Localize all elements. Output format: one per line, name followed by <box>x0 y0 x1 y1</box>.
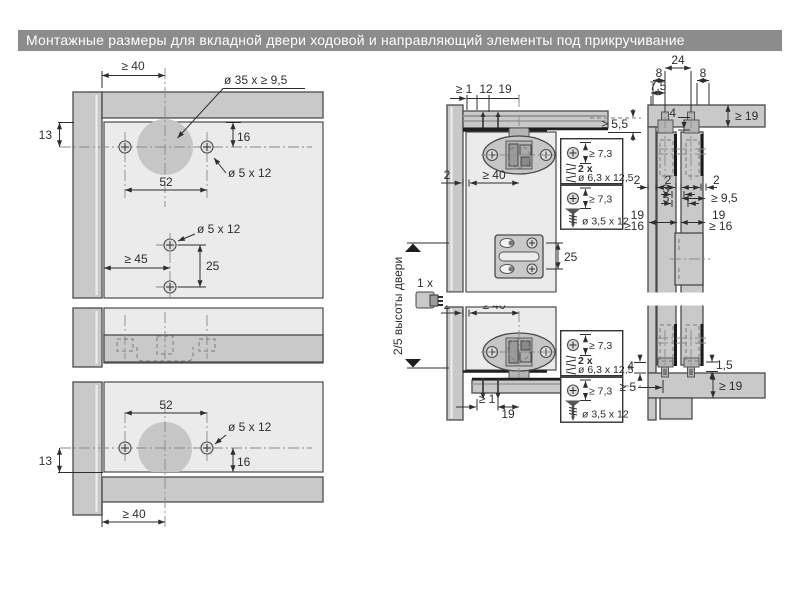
dim-1: ≥ 1 <box>479 392 496 406</box>
screw-size-label: ø 5 x 12 <box>228 166 272 180</box>
top-rail-front <box>102 92 323 118</box>
door-height-label: 2/5 высоты двери <box>391 257 405 355</box>
mounting-diagram: ≥ 40 ø 35 x ≥ 9,5 13 16 52 ø 5 x 12 ø 5 … <box>0 0 800 600</box>
dim-9-5: ≥ 9,5 <box>711 191 738 205</box>
bottom-slab-front <box>102 477 323 502</box>
screw-box-euro-bottom: ≥ 7,3 2 x ø 6,3 x 12,5 <box>561 331 634 376</box>
screw-size-label: ø 5 x 12 <box>228 420 272 434</box>
dim-2: 2 <box>444 168 451 182</box>
clip-component-icon <box>416 292 443 308</box>
dim-12: 12 <box>479 82 493 96</box>
dim-bottom-offset: ≥ 40 <box>122 507 146 521</box>
dim-1-5: 1,5 <box>716 358 733 372</box>
quantity-label: 1 x <box>417 276 433 290</box>
cup-size-label: ø 35 x ≥ 9,5 <box>224 73 288 87</box>
dim-top-offset: ≥ 40 <box>121 59 145 73</box>
dim-13: 13 <box>39 454 53 468</box>
dim-5-5: ≥ 5,5 <box>601 117 628 131</box>
dim-5-bottom: ≥ 5 <box>619 380 636 394</box>
dim-7-5: 7,5 <box>650 79 667 93</box>
up-arrow-marker <box>405 244 421 253</box>
screw-size: ø 3,5 x 12 <box>582 216 629 228</box>
dim-8: 8 <box>700 66 707 80</box>
wall-section-bottom <box>447 307 463 420</box>
screw-head-dim: ≥ 7,3 <box>589 194 612 206</box>
dim-19-bottom: ≥ 19 <box>719 379 743 393</box>
dim-19-top: ≥ 19 <box>735 109 759 123</box>
dim-25: 25 <box>206 259 220 273</box>
cabinet-back-strip <box>648 127 656 373</box>
running-rail-top <box>463 111 608 128</box>
mounting-plate <box>495 235 543 278</box>
screw-head-dim: ≥ 7,3 <box>589 386 612 398</box>
side-wall-top <box>73 92 102 298</box>
dim-25: 25 <box>564 250 578 264</box>
dim-16: ≥ 16 <box>709 219 733 233</box>
dim-24: 24 <box>671 53 685 67</box>
screw-size-label: ø 5 x 12 <box>197 222 241 236</box>
screw-size: ø 6,3 x 12,5 <box>578 364 634 376</box>
dim-16: ≥16 <box>624 219 644 233</box>
down-arrow-marker <box>405 359 421 368</box>
screw-box-wood-top: ≥ 7,3 ø 3,5 x 12 <box>561 185 629 229</box>
dim-4: 4 <box>669 106 676 120</box>
screw-head-dim: ≥ 7,3 <box>589 340 612 352</box>
front-view-drawing: ≥ 40 ø 35 x ≥ 9,5 13 16 52 ø 5 x 12 ø 5 … <box>39 59 323 530</box>
dim-45: ≥ 45 <box>124 252 148 266</box>
screw-size: ø 3,5 x 12 <box>582 409 629 421</box>
dim-1: ≥ 1 <box>456 82 473 96</box>
door-panel-bottom <box>104 382 323 472</box>
dim-2: 2 <box>713 173 720 187</box>
wall-section-top <box>447 105 463 292</box>
dim-13: 13 <box>39 128 53 142</box>
screw-head-dim: ≥ 7,3 <box>589 148 612 160</box>
dim-16: 16 <box>237 455 251 469</box>
dim-8: 8 <box>656 66 663 80</box>
dim-19: 19 <box>501 407 515 421</box>
dim-40: ≥ 40 <box>482 168 506 182</box>
screw-size: ø 6,3 x 12,5 <box>578 172 634 184</box>
dim-19: 19 <box>498 82 512 96</box>
dim-16: 16 <box>237 130 251 144</box>
dim-52: 52 <box>159 398 173 412</box>
dim-52: 52 <box>159 175 173 189</box>
plinth-leg <box>660 398 692 419</box>
screw-box-euro-top: ≥ 7,3 2 x ø 6,3 x 12,5 <box>561 139 634 184</box>
side-wall-mid <box>73 308 102 367</box>
side-wall-bottom <box>73 382 102 515</box>
dim-4: 4 <box>627 359 634 373</box>
dim-2: 2 <box>634 173 641 187</box>
connector-plate <box>670 233 710 285</box>
dim-5: 5 <box>663 191 670 205</box>
